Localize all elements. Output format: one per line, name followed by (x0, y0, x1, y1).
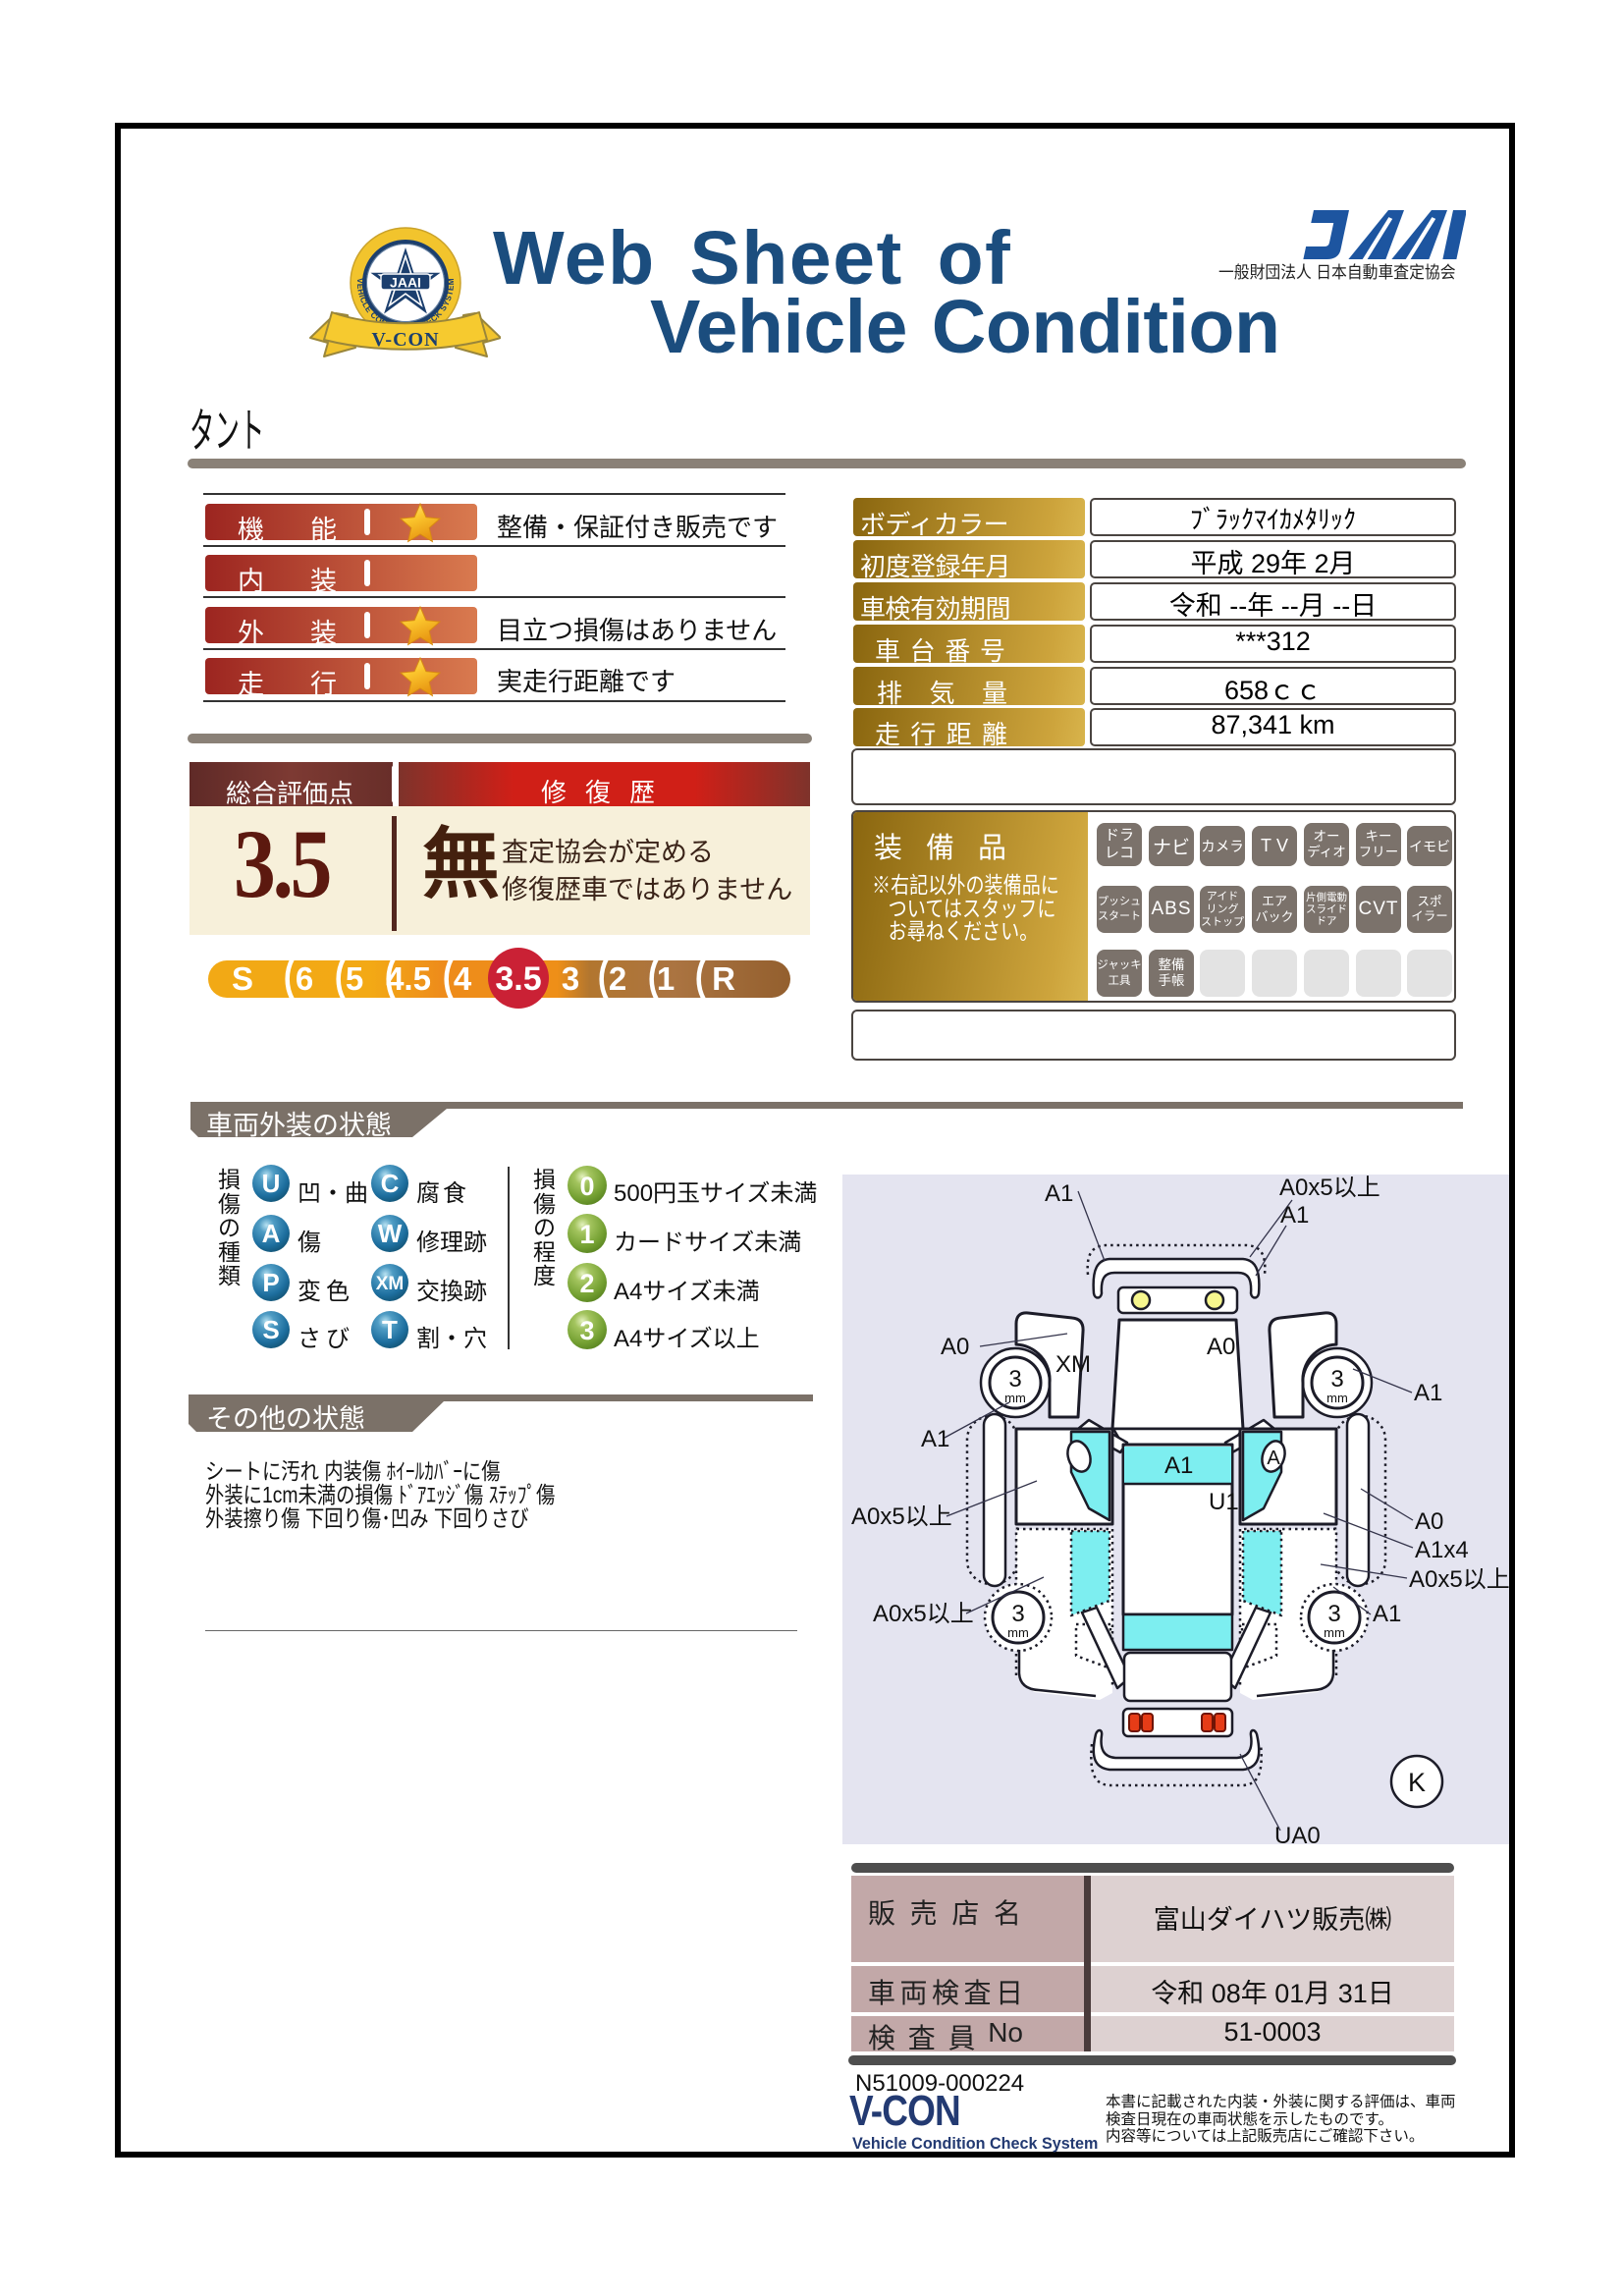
svg-text:3: 3 (1008, 1366, 1021, 1393)
svg-text:3: 3 (1327, 1601, 1340, 1627)
svg-text:3: 3 (562, 960, 579, 997)
svg-text:A0x5以上: A0x5以上 (1409, 1566, 1509, 1593)
svg-text:mm: mm (1007, 1625, 1029, 1640)
svg-text:5: 5 (346, 960, 363, 997)
svg-text:A0x5以上: A0x5以上 (851, 1503, 952, 1530)
svg-text:A0x5以上: A0x5以上 (873, 1601, 974, 1627)
svg-text:C: C (381, 1169, 400, 1198)
svg-text:U: U (262, 1169, 281, 1198)
svg-text:A: A (262, 1219, 281, 1248)
svg-text:R: R (712, 960, 735, 997)
svg-text:U1: U1 (1209, 1489, 1239, 1515)
svg-text:A1: A1 (1414, 1380, 1442, 1406)
svg-text:6: 6 (296, 960, 313, 997)
svg-text:A0: A0 (1207, 1334, 1235, 1360)
svg-text:A0: A0 (941, 1334, 969, 1360)
svg-text:K: K (1408, 1768, 1426, 1797)
svg-text:A: A (1267, 1448, 1280, 1469)
svg-text:2: 2 (609, 960, 626, 997)
svg-text:3: 3 (1330, 1366, 1343, 1393)
svg-text:T: T (382, 1315, 398, 1344)
svg-text:A1: A1 (921, 1426, 949, 1452)
svg-text:JAAI: JAAI (390, 275, 421, 291)
svg-text:0: 0 (579, 1172, 594, 1201)
svg-text:UA0: UA0 (1274, 1823, 1321, 1844)
svg-text:A0x5以上: A0x5以上 (1279, 1175, 1380, 1201)
svg-text:XM: XM (376, 1274, 405, 1294)
svg-text:mm: mm (1324, 1625, 1345, 1640)
svg-text:1: 1 (579, 1220, 594, 1249)
svg-text:P: P (262, 1268, 279, 1297)
svg-text:V-CON: V-CON (371, 329, 439, 351)
svg-text:W: W (378, 1219, 403, 1248)
svg-text:A1: A1 (1164, 1452, 1193, 1479)
svg-text:A0: A0 (1415, 1508, 1443, 1535)
svg-text:2: 2 (579, 1269, 594, 1298)
svg-text:A1: A1 (1280, 1202, 1309, 1229)
svg-text:4: 4 (454, 960, 472, 997)
svg-text:1: 1 (657, 960, 675, 997)
svg-text:4.5: 4.5 (386, 960, 431, 997)
svg-text:A1: A1 (1045, 1180, 1073, 1207)
svg-text:A1x4: A1x4 (1415, 1537, 1469, 1563)
svg-text:3.5: 3.5 (495, 960, 541, 998)
svg-text:S: S (232, 960, 253, 997)
svg-text:A1: A1 (1373, 1601, 1401, 1627)
svg-text:S: S (262, 1315, 279, 1344)
svg-text:XM: XM (1055, 1351, 1091, 1378)
svg-text:mm: mm (1326, 1391, 1348, 1405)
svg-text:mm: mm (1004, 1391, 1026, 1405)
svg-text:3: 3 (1011, 1601, 1024, 1627)
svg-text:3: 3 (579, 1316, 594, 1345)
